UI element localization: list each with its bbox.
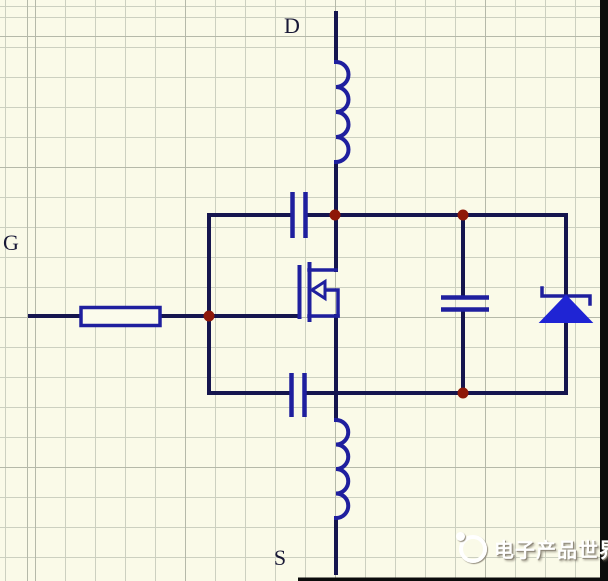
capacitor-drain-source bbox=[441, 298, 489, 310]
resistor-gate-body bbox=[81, 308, 160, 326]
resistor-gate bbox=[81, 308, 160, 326]
schematic-sheet: D G S 电子产品世界 bbox=[0, 0, 608, 581]
capacitor-gate-source bbox=[292, 373, 305, 417]
zener-anode-triangle bbox=[541, 296, 591, 322]
gate-label: G bbox=[3, 230, 19, 255]
drain-label: D bbox=[284, 13, 300, 38]
inductor-drain bbox=[336, 62, 349, 162]
schematic-canvas: D G S bbox=[0, 0, 608, 581]
eepw-logo-icon bbox=[459, 535, 487, 563]
junction-dot-cap-bottom bbox=[458, 388, 469, 399]
terminal-labels: D G S bbox=[3, 13, 300, 570]
junction-dot-drain-top bbox=[330, 210, 341, 221]
mosfet-body-arrow-icon bbox=[312, 282, 325, 299]
watermark-text: 电子产品世界 bbox=[494, 534, 608, 563]
right-border bbox=[600, 0, 608, 581]
inductor-source bbox=[336, 420, 348, 518]
mosfet-n-channel bbox=[300, 264, 339, 320]
capacitor-gate-drain bbox=[293, 192, 306, 238]
source-label: S bbox=[274, 545, 286, 570]
junction-dot-cap-top bbox=[458, 210, 469, 221]
junction-dot-gate bbox=[204, 311, 215, 322]
inductor-drain-coil bbox=[336, 62, 349, 162]
inductor-source-coil bbox=[336, 420, 348, 518]
bottom-border bbox=[298, 578, 608, 581]
watermark: 电子产品世界 bbox=[459, 534, 608, 563]
